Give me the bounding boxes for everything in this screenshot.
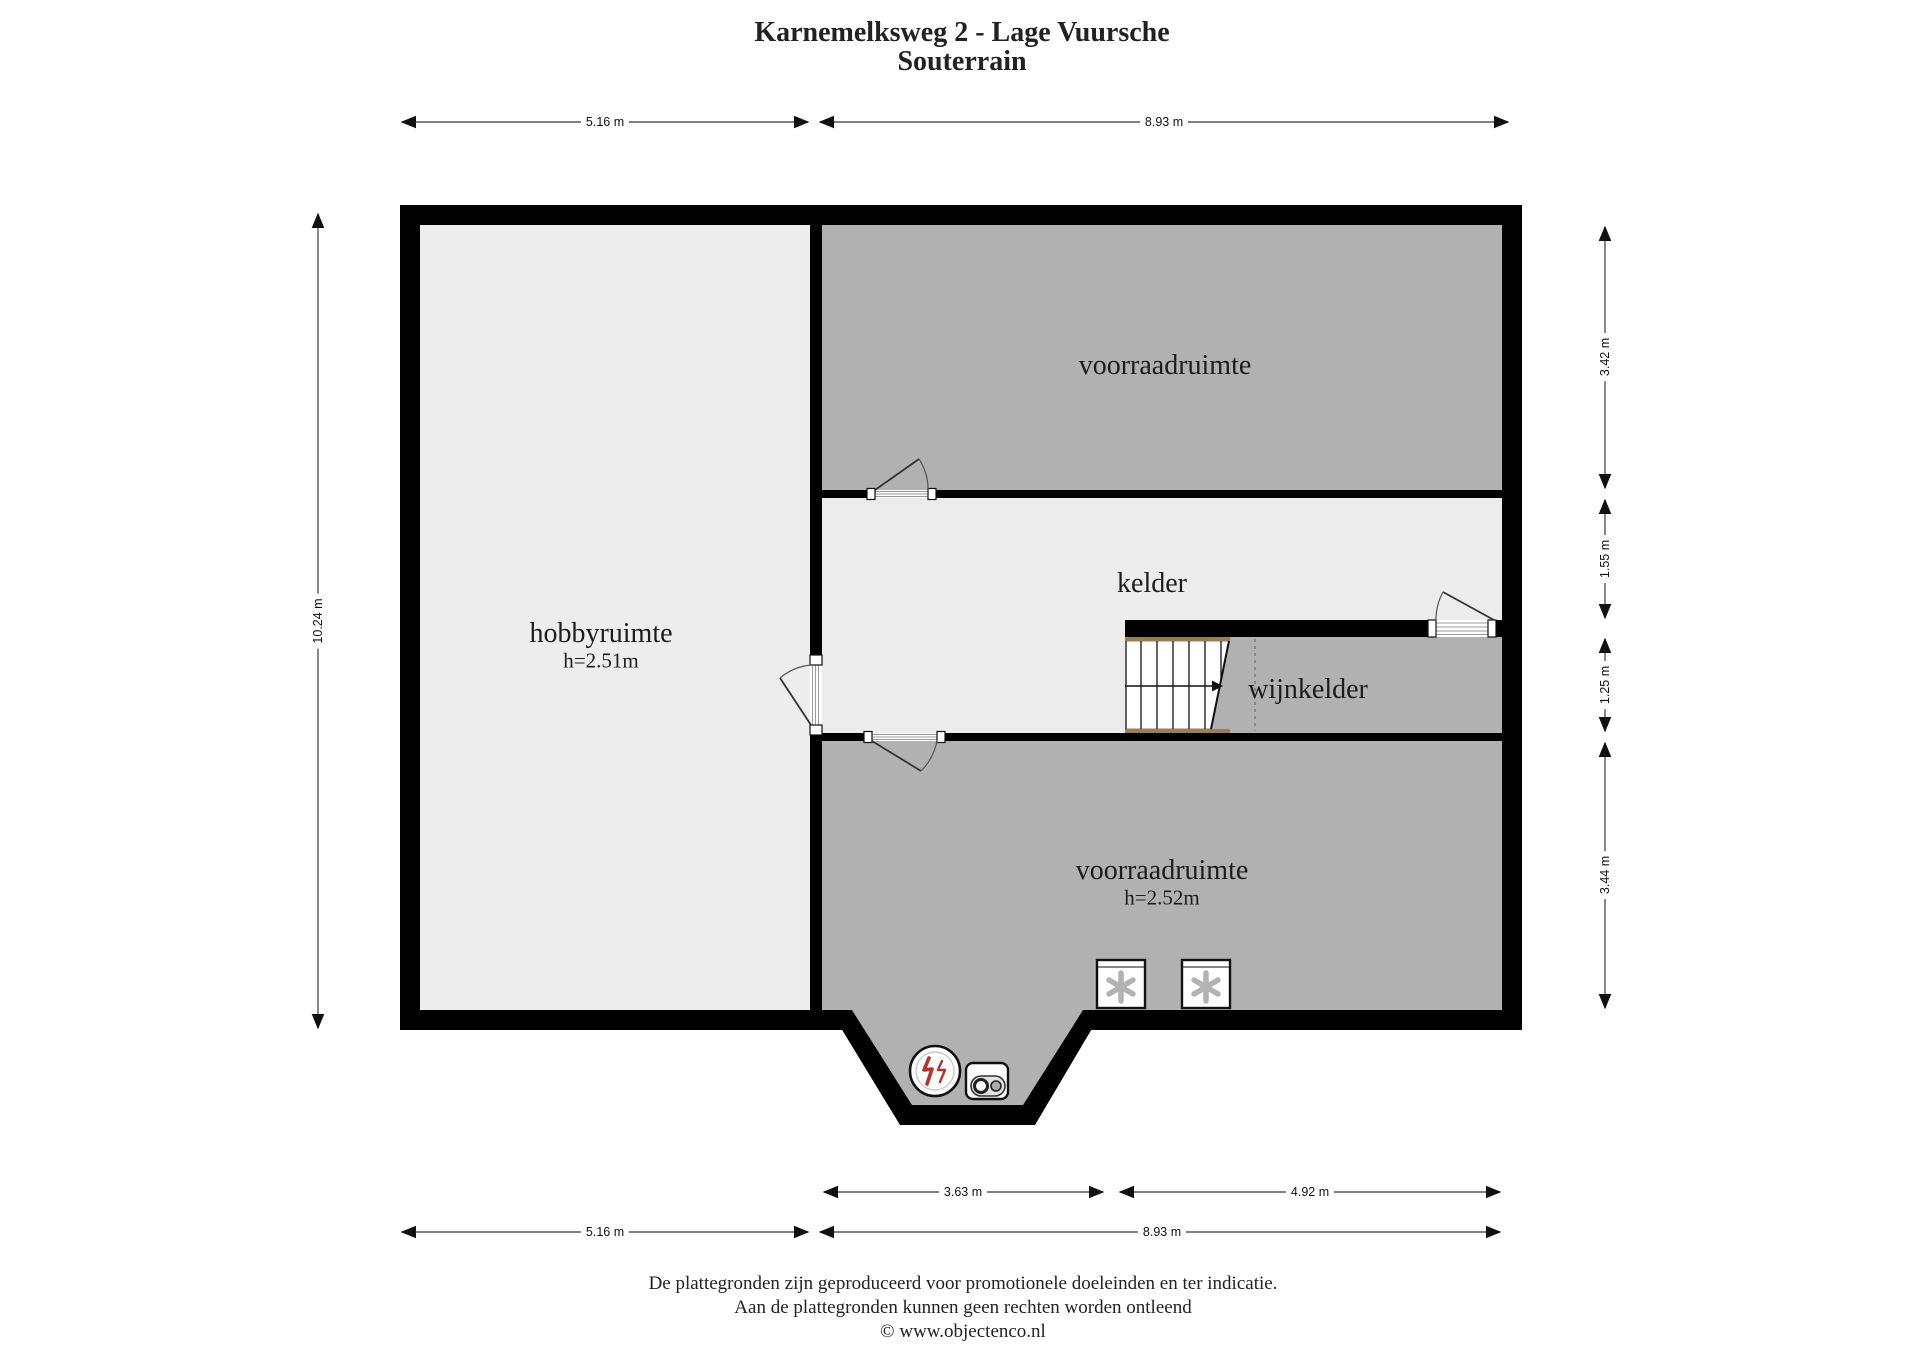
meter-icon — [966, 1063, 1008, 1099]
wall-outer-bottom-right — [1083, 1010, 1522, 1030]
boiler-icon — [910, 1046, 960, 1096]
wall-divider-lower — [810, 735, 822, 1010]
wall-kelder-top-b — [936, 490, 1502, 498]
floor-plan-page: Karnemelksweg 2 - Lage Vuursche Souterra… — [0, 0, 1920, 1358]
stairs-rail-bottom — [1125, 729, 1230, 734]
room-voorraadruimte-bottom — [822, 741, 1502, 1010]
dryer-icon — [1182, 960, 1230, 1008]
wall-wijnkelder-top — [1125, 620, 1428, 637]
wall-kelder-top-a — [822, 490, 867, 498]
stairs-rail-top — [1125, 637, 1230, 642]
wall-wijnkelder-stub — [1496, 620, 1502, 637]
room-voorraadruimte-top — [822, 225, 1502, 490]
washer-icon — [1097, 960, 1145, 1008]
wall-outer-left — [400, 205, 420, 1030]
room-fills — [420, 225, 1502, 1105]
floor-plan-svg — [0, 0, 1920, 1358]
wall-outer-bottom-left — [400, 1010, 852, 1030]
room-hobbyruimte — [420, 225, 810, 1010]
wall-outer-top — [400, 205, 1522, 225]
wall-outer-right — [1502, 205, 1522, 1030]
wall-kelder-bottom-a — [822, 733, 864, 741]
wall-kelder-bottom-b — [945, 733, 1502, 741]
wall-divider-upper — [810, 225, 822, 655]
